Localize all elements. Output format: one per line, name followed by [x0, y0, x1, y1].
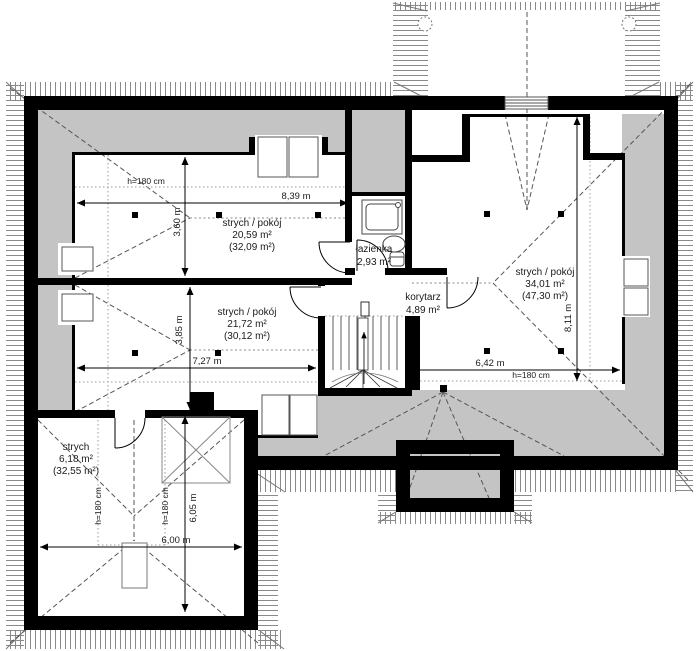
attic-depth-label: 6,05 m	[188, 493, 199, 522]
room1-floor-area: (32,09 m²)	[229, 242, 275, 253]
chimney-shaft	[352, 110, 405, 196]
floor-plan-drawing: strych / pokój 20,59 m² (32,09 m²) stryc…	[0, 0, 699, 651]
room2-floor-area: (30,12 m²)	[224, 331, 270, 342]
pillar	[190, 392, 214, 418]
room3-name: strych / pokój	[516, 267, 575, 278]
room1-area: 20,59 m²	[232, 230, 272, 241]
room2-bay-window	[262, 395, 289, 435]
room1-window	[258, 137, 287, 177]
attic-width-label: 6,00 m	[161, 535, 190, 546]
stair-rail	[361, 302, 369, 316]
corridor-name: korytarz	[405, 292, 441, 303]
bathroom-area: 2,93 m²	[357, 257, 392, 268]
attic-headroom-right-label: h=180 cm	[160, 487, 170, 525]
bathroom-name: łazienka	[356, 244, 393, 255]
room3-area: 34,01 m²	[525, 279, 565, 290]
stair-newel	[358, 318, 368, 370]
room3-width-label: 6,42 m	[475, 358, 504, 369]
attic-roof-window	[122, 543, 147, 588]
attic-floor-area: (32,55 m²)	[53, 466, 99, 477]
attic-area: 6,18 m²	[59, 454, 94, 465]
room2-left-window	[62, 294, 93, 321]
floor-plan: strych / pokój 20,59 m² (32,09 m²) stryc…	[0, 0, 699, 651]
attic-south-wall	[24, 616, 258, 630]
room1-left-window	[62, 247, 93, 271]
room1-depth-label: 3,60 m	[172, 207, 183, 236]
attic-west-wall	[24, 410, 38, 630]
room1-window	[289, 137, 318, 177]
flue-right	[622, 17, 636, 31]
room2-area: 21,72 m²	[227, 319, 267, 330]
room1-name: strych / pokój	[223, 218, 282, 229]
attic-headroom-left-label: h=180 cm	[93, 487, 103, 525]
room2-width-label: 7,27 m	[192, 356, 221, 367]
room3-floor-area: (47,30 m²)	[522, 291, 568, 302]
room2-bay-window	[290, 395, 317, 435]
corridor-area: 4,89 m²	[406, 305, 441, 316]
room3-window	[624, 259, 648, 286]
shower-tray	[366, 204, 398, 230]
room2-name: strych / pokój	[218, 307, 277, 318]
flue-left	[418, 17, 432, 31]
porch-wall	[396, 440, 514, 454]
room2-depth-label: 3,85 m	[174, 315, 185, 344]
room3-headroom-label: h=180 cm	[512, 370, 550, 380]
room-divider-wall	[24, 278, 352, 285]
room3-depth-label: 8,11 m	[563, 304, 574, 332]
room1-width-label: 8,39 m	[281, 191, 310, 202]
room3-window	[624, 288, 648, 315]
room1-headroom-label: h=180 cm	[127, 176, 165, 186]
attic-name: strych	[63, 442, 90, 453]
shower-head	[396, 203, 401, 208]
attic-east-wall	[244, 410, 258, 630]
